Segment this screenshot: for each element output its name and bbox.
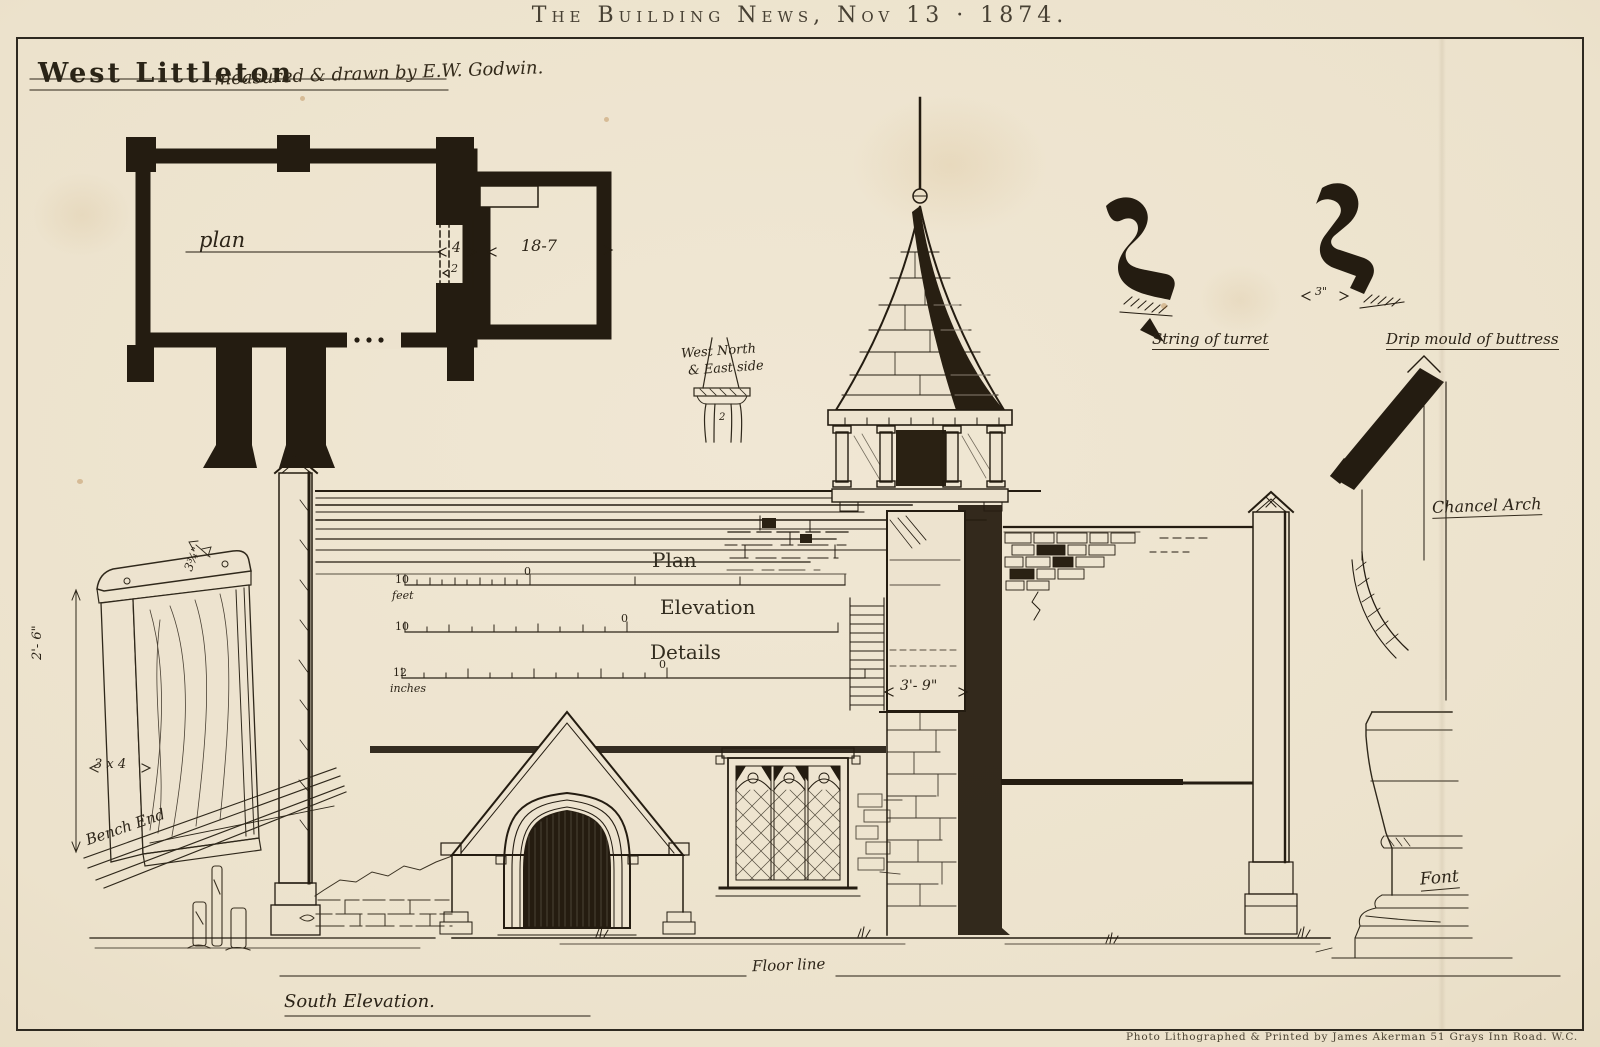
scale-bars-drawing	[402, 575, 865, 678]
south-elevation-label: South Elevation.	[284, 991, 435, 1012]
floor-line-label: Floor line	[752, 955, 826, 976]
lithograph-plate: The Building News, Nov 13 · 1874. West L…	[0, 0, 1600, 1047]
plan-label: plan	[199, 228, 245, 252]
font-drawing	[1316, 680, 1512, 958]
plan-dim-arch-width: 4	[452, 240, 461, 256]
chancel-drawing	[1004, 492, 1297, 934]
porch-drawing	[440, 712, 695, 935]
scale-plan-unit: feet	[392, 589, 414, 602]
nave-string-course	[370, 746, 886, 753]
side-detail-dim: 2	[719, 412, 725, 423]
drip-mould-dim: 3"	[1315, 285, 1327, 298]
scale-plan-title: Plan	[652, 548, 697, 572]
west-buttress	[271, 455, 320, 935]
font-label: Font	[1419, 866, 1460, 891]
scale-details-unit: inches	[390, 682, 426, 695]
scale-elevation-title: Elevation	[660, 595, 755, 619]
scale-elevation-zero: 0	[621, 612, 628, 625]
scale-details-start: 12	[393, 666, 407, 679]
scale-details-zero: 0	[659, 658, 666, 671]
plan-dim-arch-depth: 2	[451, 262, 458, 275]
floor-plan-drawing	[126, 135, 612, 468]
string-of-turret-label: String of turret	[1152, 330, 1269, 350]
south-elevation-drawing	[90, 98, 1560, 1016]
foxing-spot	[300, 96, 305, 101]
drip-mould-label: Drip mould of buttress	[1386, 330, 1559, 350]
chancel-arch-label: Chancel Arch	[1432, 494, 1542, 519]
foxing-spot	[604, 117, 609, 122]
window-drawing	[716, 748, 902, 896]
engraving-canvas	[0, 0, 1600, 1047]
ruin-wall	[300, 856, 452, 926]
turret-stair-slit	[850, 598, 884, 710]
scale-plan-start: 10	[395, 573, 409, 586]
bench-end-section-dim: 3 x 4	[94, 757, 126, 772]
plan-dim-chancel: 18-7	[521, 236, 557, 255]
scale-elevation-start: 10	[395, 620, 409, 633]
chancel-arch-drawing	[1330, 356, 1446, 700]
scale-plan-zero: 0	[524, 565, 531, 578]
string-of-turret-drawing	[1106, 197, 1175, 342]
foxing-spot	[77, 479, 83, 484]
masthead-title: The Building News, Nov 13 · 1874.	[0, 3, 1600, 28]
turret-width-dim: 3'- 9"	[900, 678, 937, 694]
turret-drawing	[828, 98, 1012, 935]
bench-end-height-dim: 2'- 6"	[30, 625, 45, 660]
printer-credit: Photo Lithographed & Printed by James Ak…	[1126, 1031, 1578, 1043]
foxing-spot	[1161, 303, 1167, 309]
